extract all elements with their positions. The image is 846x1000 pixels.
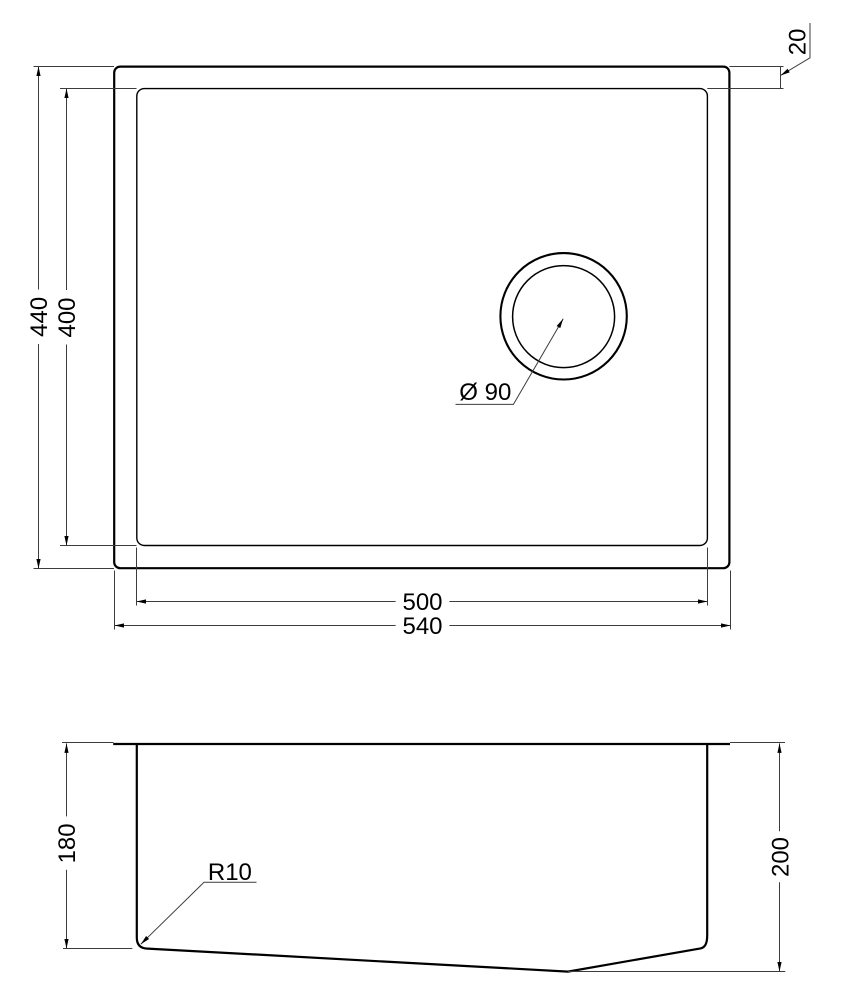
svg-text:440: 440 xyxy=(26,297,53,337)
svg-text:Ø 90: Ø 90 xyxy=(459,379,511,406)
svg-text:180: 180 xyxy=(54,823,81,863)
svg-text:500: 500 xyxy=(402,589,442,616)
svg-text:R10: R10 xyxy=(208,859,252,886)
svg-text:20: 20 xyxy=(785,29,812,56)
svg-text:200: 200 xyxy=(767,837,794,877)
svg-text:540: 540 xyxy=(402,613,442,640)
svg-text:400: 400 xyxy=(54,297,81,337)
